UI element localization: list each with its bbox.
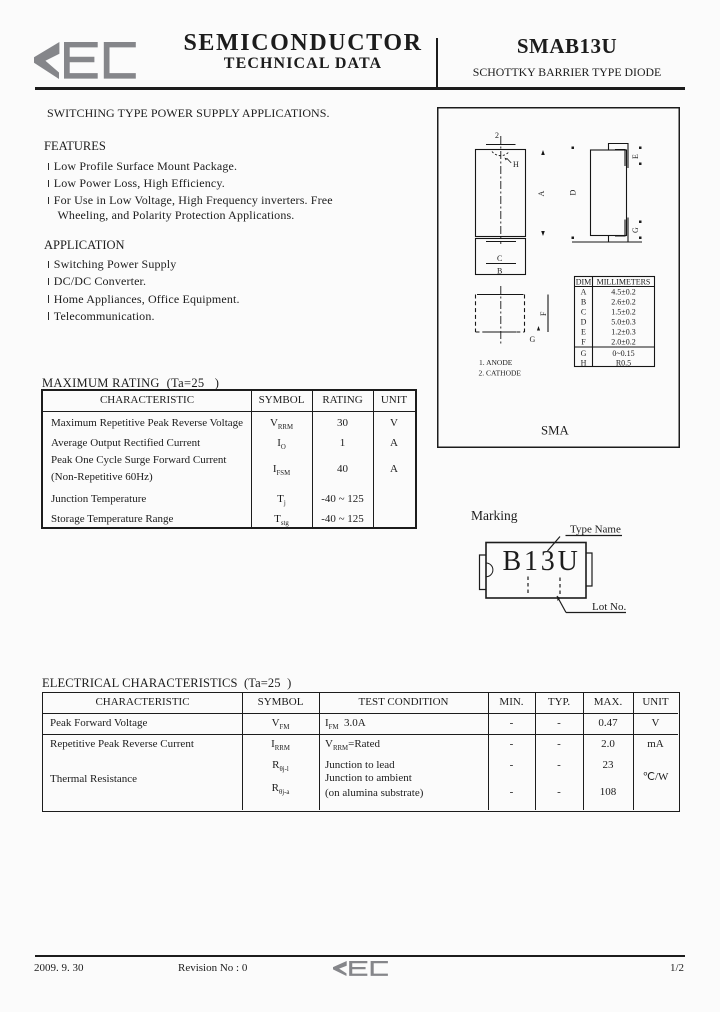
svg-text:5.0±0.3: 5.0±0.3 xyxy=(611,318,635,327)
svg-text:2. CATHODE: 2. CATHODE xyxy=(479,369,522,378)
svg-text:DIM: DIM xyxy=(576,278,592,287)
svg-text:2.0±0.2: 2.0±0.2 xyxy=(611,338,635,347)
svg-text:G: G xyxy=(581,349,587,358)
svg-text:B: B xyxy=(497,267,502,276)
svg-text:D: D xyxy=(569,190,578,196)
svg-text:E: E xyxy=(581,328,586,337)
svg-text:R0.5: R0.5 xyxy=(616,359,631,368)
svg-text:1. ANODE: 1. ANODE xyxy=(479,358,513,367)
svg-text:F: F xyxy=(539,311,548,316)
svg-text:C: C xyxy=(497,254,502,263)
svg-text:F: F xyxy=(581,338,586,347)
svg-text:A: A xyxy=(537,191,546,197)
svg-text:B: B xyxy=(581,298,586,307)
svg-text:H: H xyxy=(581,359,587,368)
svg-text:C: C xyxy=(581,308,586,317)
svg-text:H: H xyxy=(513,160,519,169)
svg-text:0~0.15: 0~0.15 xyxy=(612,349,634,358)
svg-text:2.6±0.2: 2.6±0.2 xyxy=(611,298,635,307)
svg-text:A: A xyxy=(581,288,587,297)
svg-text:MILLIMETERS: MILLIMETERS xyxy=(597,278,651,287)
svg-text:4.5±0.2: 4.5±0.2 xyxy=(611,288,635,297)
svg-text:G: G xyxy=(530,335,536,344)
svg-text:E: E xyxy=(631,154,640,159)
svg-text:Type Name: Type Name xyxy=(570,524,621,536)
svg-text:G: G xyxy=(631,227,640,233)
svg-text:B13U: B13U xyxy=(503,546,581,577)
svg-text:D: D xyxy=(581,318,587,327)
svg-text:1.2±0.3: 1.2±0.3 xyxy=(611,328,635,337)
svg-text:1.5±0.2: 1.5±0.2 xyxy=(611,308,635,317)
svg-text:SMA: SMA xyxy=(541,424,569,438)
svg-text:Lot No.: Lot No. xyxy=(592,601,626,613)
svg-text:2: 2 xyxy=(495,131,499,140)
